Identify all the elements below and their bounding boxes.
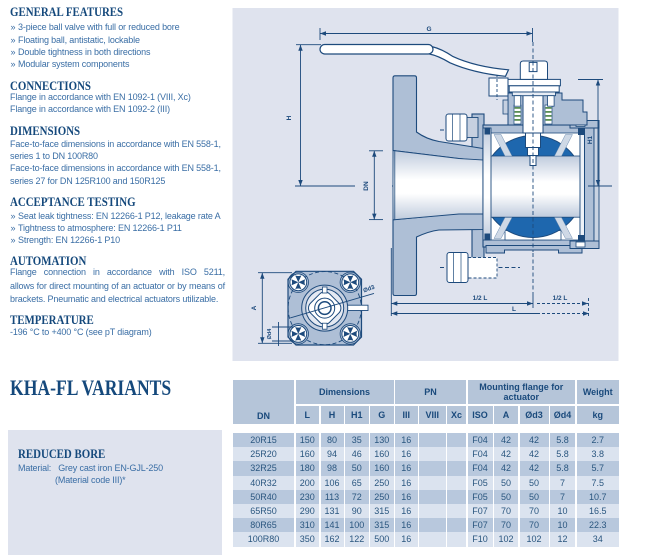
- svg-text:Ød4: Ød4: [267, 328, 273, 340]
- svg-text:1/2 L: 1/2 L: [473, 295, 488, 302]
- svg-text:DN: DN: [363, 181, 370, 191]
- svg-text:A: A: [251, 305, 258, 310]
- svg-text:H: H: [286, 115, 293, 120]
- svg-text:H1: H1: [587, 135, 594, 144]
- svg-text:L: L: [512, 306, 516, 313]
- svg-text:1/2 L: 1/2 L: [553, 295, 568, 302]
- svg-text:G: G: [426, 26, 431, 33]
